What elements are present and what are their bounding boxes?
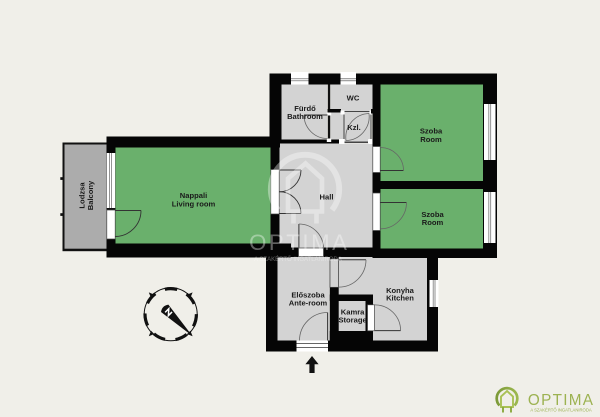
svg-text:Balcony: Balcony — [86, 180, 95, 210]
svg-text:Living room: Living room — [172, 200, 216, 209]
svg-text:A SZAKÉRTŐ INGATLANIRODA: A SZAKÉRTŐ INGATLANIRODA — [530, 408, 591, 413]
svg-text:WC: WC — [347, 94, 360, 103]
svg-text:OPTIMA: OPTIMA — [249, 230, 349, 255]
svg-text:Kitchen: Kitchen — [386, 294, 414, 303]
svg-text:Ante-room: Ante-room — [289, 299, 328, 308]
svg-text:Room: Room — [422, 218, 444, 227]
svg-text:Storage: Storage — [338, 316, 366, 325]
svg-text:Room: Room — [420, 135, 442, 144]
svg-text:OPTIMA: OPTIMA — [528, 392, 594, 409]
svg-text:A SZAKÉRTŐ INGATLANIRODA: A SZAKÉRTŐ INGATLANIRODA — [254, 256, 342, 263]
svg-text:Hall: Hall — [320, 193, 334, 202]
svg-text:Bathroom: Bathroom — [287, 112, 323, 121]
svg-text:Kzl.: Kzl. — [347, 123, 361, 132]
